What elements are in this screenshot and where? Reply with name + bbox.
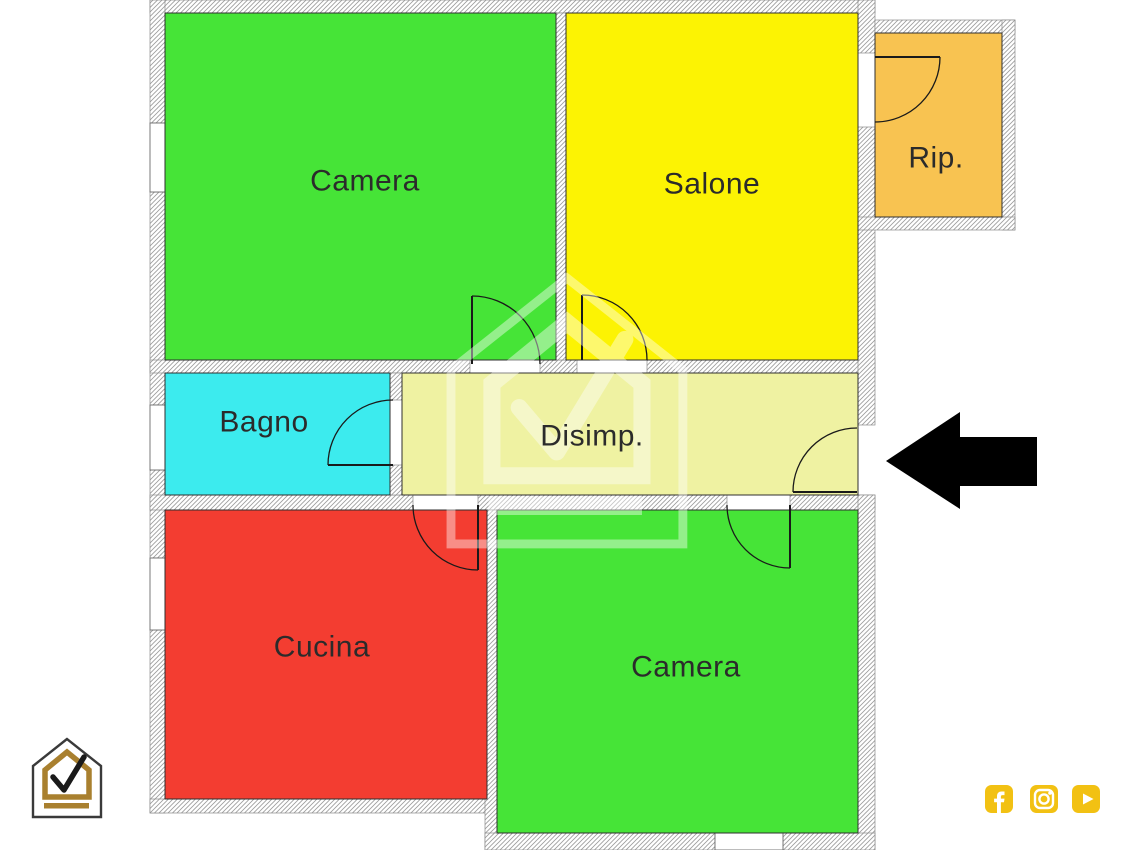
room-label-camera-2: Camera <box>631 651 741 684</box>
room-label-rip: Rip. <box>908 142 963 175</box>
wall-segment <box>390 373 402 400</box>
instagram-dot <box>1048 791 1051 794</box>
facebook-icon[interactable] <box>985 785 1013 813</box>
watermark-underline <box>489 496 642 515</box>
wall-segment <box>150 0 875 13</box>
room-label-salone: Salone <box>664 168 760 201</box>
wall-segment <box>540 360 577 373</box>
wall-segment <box>1002 20 1015 230</box>
wall-segment <box>858 495 875 850</box>
wall-segment <box>390 465 402 495</box>
wall-segment <box>783 833 875 850</box>
room-label-bagno: Bagno <box>219 406 308 439</box>
wall-segment <box>150 360 470 373</box>
youtube-icon[interactable] <box>1072 785 1100 813</box>
instagram-icon[interactable] <box>1030 785 1058 813</box>
logo-underline <box>44 803 89 809</box>
floorplan-page: Camera Salone Rip. Bagno Disimp. Cucina … <box>0 0 1133 850</box>
floorplan-canvas: Camera Salone Rip. Bagno Disimp. Cucina … <box>0 0 1133 850</box>
window <box>150 558 165 630</box>
room-label-disimp: Disimp. <box>540 420 644 453</box>
window <box>150 405 165 470</box>
wall-segment <box>556 13 566 360</box>
wall-segment <box>150 630 165 813</box>
room-label-cucina: Cucina <box>274 631 370 664</box>
wall-segment <box>858 127 875 425</box>
house-check-logo <box>33 739 101 817</box>
wall-segment <box>485 833 715 850</box>
wall-segment <box>858 217 1015 230</box>
room-label-camera-1: Camera <box>310 165 420 198</box>
wall-segment <box>150 799 487 813</box>
wall-segment <box>150 470 165 558</box>
wall-segment <box>150 495 413 510</box>
social-icons <box>985 785 1100 813</box>
entrance-arrow-icon <box>886 412 1037 509</box>
room-rip <box>875 33 1002 217</box>
wall-segment <box>150 0 165 123</box>
window <box>715 833 783 850</box>
wall-segment <box>858 0 875 53</box>
wall-segment <box>875 20 1015 33</box>
window <box>150 123 165 192</box>
